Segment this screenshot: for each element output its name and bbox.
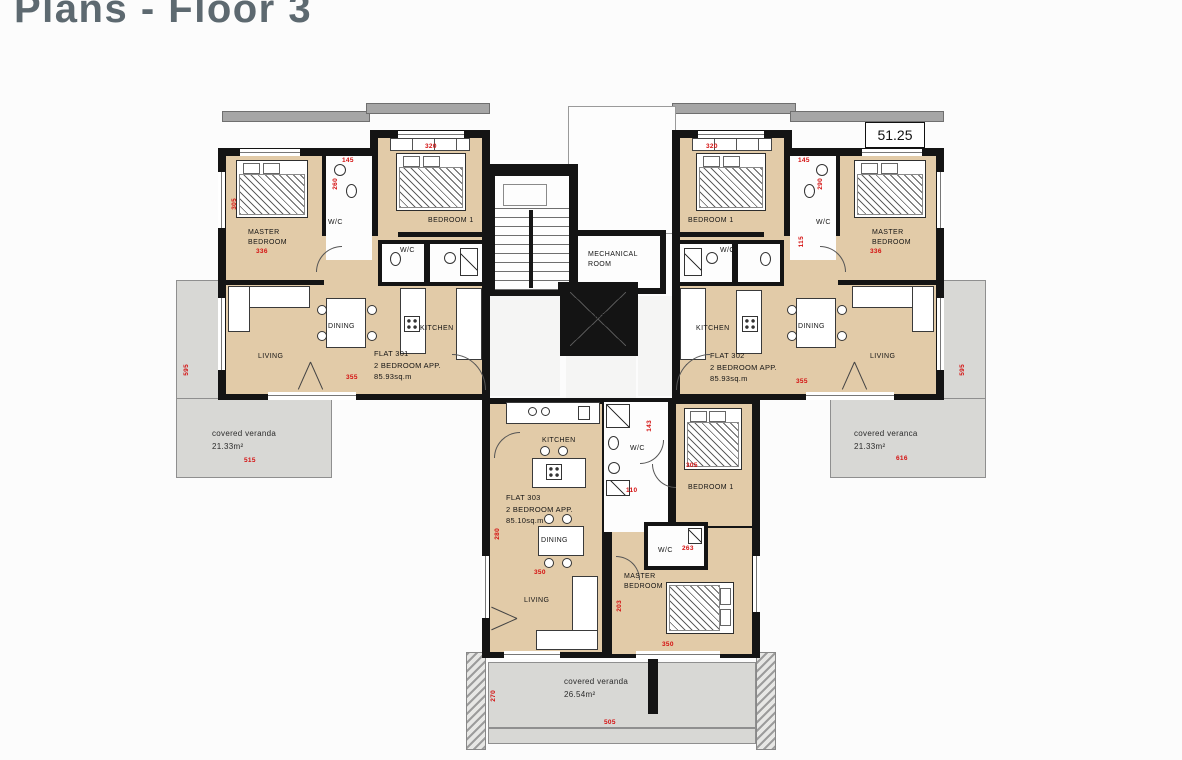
flat-area: 85.93sq.m <box>710 373 777 385</box>
window <box>937 172 944 228</box>
room-label: DINING <box>328 322 355 332</box>
flat-303-label: FLAT 303 2 BEDROOM APP. 85.10sq.m <box>506 492 573 527</box>
balcony-door-icon <box>296 362 324 392</box>
window <box>218 172 225 228</box>
veranda-name: covered veranda <box>212 427 276 440</box>
flat-area: 85.93sq.m <box>374 371 441 383</box>
sink-icon <box>706 252 718 264</box>
bed-icon <box>666 582 734 634</box>
room-label: LIVING <box>870 352 895 362</box>
chair-icon <box>544 558 554 568</box>
dimension-label: 336 <box>870 248 882 255</box>
bed-icon <box>696 153 766 211</box>
dimension-label: 115 <box>798 236 805 247</box>
window <box>240 149 300 156</box>
sofa-icon <box>536 630 598 650</box>
toilet-icon <box>608 436 619 450</box>
stair-landing <box>503 184 547 206</box>
window <box>937 298 944 370</box>
parapet <box>790 111 944 122</box>
room-label: DINING <box>541 536 568 546</box>
chair-icon <box>787 331 797 341</box>
flat-type: 2 BEDROOM APP. <box>710 362 777 374</box>
veranda-bottom-step <box>488 728 756 744</box>
dimension-label: 355 <box>796 378 808 385</box>
parapet <box>222 111 370 122</box>
bathroom-301 <box>326 156 372 260</box>
corridor <box>490 296 560 396</box>
bathroom-302 <box>790 156 836 260</box>
room-label: W/C <box>328 218 343 228</box>
wall <box>838 280 936 285</box>
chair-icon <box>540 446 550 456</box>
room-label: W/C <box>720 246 735 256</box>
room-label: BEDROOM 1 <box>688 483 734 493</box>
room-label: W/C <box>400 246 415 256</box>
parapet <box>672 103 796 114</box>
dimension-label: 290 <box>817 178 824 190</box>
level-marker: 51.25 <box>865 122 925 148</box>
bed-icon <box>236 160 308 218</box>
dimension-label: 355 <box>346 374 358 381</box>
balcony-door-icon <box>840 362 868 392</box>
sink-icon <box>608 462 620 474</box>
window <box>218 298 225 370</box>
veranda-area: 21.33m² <box>212 440 276 453</box>
room-label: BEDROOM 1 <box>688 216 734 226</box>
dimension-label: 350 <box>534 569 546 576</box>
stove-icon <box>742 316 758 332</box>
stove-icon <box>546 464 562 480</box>
sink-icon <box>541 407 550 416</box>
flat-type: 2 BEDROOM APP. <box>374 360 441 372</box>
floor-plan-sheet: Plans - Floor 3 51.25 MECHANICAL ROOM LI… <box>0 0 1182 760</box>
corridor <box>566 356 636 398</box>
window <box>753 556 760 612</box>
chair-icon <box>837 305 847 315</box>
sink-icon <box>816 164 828 176</box>
flat-name: FLAT 303 <box>506 492 573 504</box>
window <box>698 131 764 138</box>
wc2-302 <box>738 244 780 282</box>
wall <box>226 280 324 285</box>
flat-301-label: FLAT 301 2 BEDROOM APP. 85.93sq.m <box>374 348 441 383</box>
toilet-icon <box>804 184 815 198</box>
window <box>398 131 464 138</box>
sofa-icon <box>912 286 934 332</box>
roof-outline <box>568 106 676 234</box>
corridor <box>638 296 672 396</box>
flat-name: FLAT 301 <box>374 348 441 360</box>
chair-icon <box>787 305 797 315</box>
balcony-door-icon <box>489 605 517 631</box>
flat-name: FLAT 302 <box>710 350 777 362</box>
window <box>268 392 356 400</box>
window <box>806 392 894 400</box>
window <box>636 651 720 659</box>
room-label: W/C <box>816 218 831 228</box>
wall <box>398 232 482 237</box>
window <box>862 149 922 156</box>
room-label: LIVING <box>258 352 283 362</box>
dimension-label: 143 <box>646 420 653 432</box>
dimension-label: 260 <box>332 178 339 190</box>
veranda-bottom-label: covered veranda 26.54m² <box>564 675 628 701</box>
dimension-label: 263 <box>682 545 694 552</box>
room-label: DINING <box>798 322 825 332</box>
veranda-name: covered veranca <box>854 427 918 440</box>
veranda-area: 21.33m² <box>854 440 918 453</box>
shower-icon <box>460 248 478 276</box>
dimension-label: 515 <box>244 457 256 464</box>
window <box>482 556 489 618</box>
parapet <box>366 103 490 114</box>
shower-icon <box>684 248 702 276</box>
shower-icon <box>688 528 702 544</box>
room-label: MASTER BEDROOM <box>872 228 918 248</box>
bed-icon <box>854 160 926 218</box>
shower-icon <box>606 404 630 428</box>
stair-stringer <box>529 210 533 288</box>
bed-icon <box>396 153 466 211</box>
wall <box>680 232 764 237</box>
closet-icon <box>692 138 772 151</box>
hatch-band <box>756 652 776 750</box>
chair-icon <box>367 331 377 341</box>
chair-icon <box>317 305 327 315</box>
dimension-label: 505 <box>604 719 616 726</box>
veranda-left-label: covered veranda 21.33m² <box>212 427 276 453</box>
dimension-label: 203 <box>616 600 623 612</box>
dimension-label: 320 <box>425 143 437 150</box>
dimension-label: 305 <box>231 198 238 210</box>
flat-type: 2 BEDROOM APP. <box>506 504 573 516</box>
dimension-label: 145 <box>798 157 810 164</box>
room-label: MASTER BEDROOM <box>624 572 672 592</box>
room-label: W/C <box>658 546 673 556</box>
chair-icon <box>367 305 377 315</box>
room-label: BEDROOM 1 <box>428 216 474 226</box>
chair-icon <box>562 558 572 568</box>
room-label: W/C <box>630 444 645 454</box>
kitchen-counter <box>456 288 482 360</box>
dimension-label: 350 <box>662 641 674 648</box>
dimension-label: 320 <box>706 143 718 150</box>
kitchen-fixture <box>578 406 590 420</box>
veranda-area: 26.54m² <box>564 688 628 701</box>
room-label: KITCHEN <box>696 324 730 334</box>
flat-302-label: FLAT 302 2 BEDROOM APP. 85.93sq.m <box>710 350 777 385</box>
sink-icon <box>528 407 537 416</box>
sofa-icon <box>228 286 250 332</box>
wall <box>648 658 658 714</box>
hatch-band <box>466 652 486 750</box>
sink-icon <box>334 164 346 176</box>
veranda-right-label: covered veranca 21.33m² <box>854 427 918 453</box>
bed-icon <box>684 408 742 470</box>
toilet-icon <box>346 184 357 198</box>
dimension-label: 595 <box>959 364 966 376</box>
dimension-label: 616 <box>896 455 908 462</box>
flat-area: 85.10sq.m <box>506 515 573 527</box>
room-label: KITCHEN <box>420 324 454 334</box>
veranda-name: covered veranda <box>564 675 628 688</box>
dimension-label: 270 <box>490 690 497 702</box>
dimension-label: 280 <box>494 528 501 540</box>
dimension-label: 336 <box>256 248 268 255</box>
room-label: LIVING <box>524 596 549 606</box>
chair-icon <box>837 331 847 341</box>
mechanical-room-label: MECHANICAL ROOM <box>588 250 640 270</box>
dimension-label: 595 <box>183 364 190 376</box>
chair-icon <box>317 331 327 341</box>
page-title: Plans - Floor 3 <box>14 0 312 32</box>
room-label: KITCHEN <box>542 436 576 446</box>
room-label: MASTER BEDROOM <box>248 228 294 248</box>
stove-icon <box>404 316 420 332</box>
toilet-icon <box>760 252 771 266</box>
dimension-label: 145 <box>342 157 354 164</box>
sink-icon <box>444 252 456 264</box>
lift-label: LIFT <box>570 313 626 323</box>
dimension-label: 305 <box>686 462 698 469</box>
dimension-label: 110 <box>626 487 637 494</box>
window <box>504 651 560 659</box>
chair-icon <box>558 446 568 456</box>
